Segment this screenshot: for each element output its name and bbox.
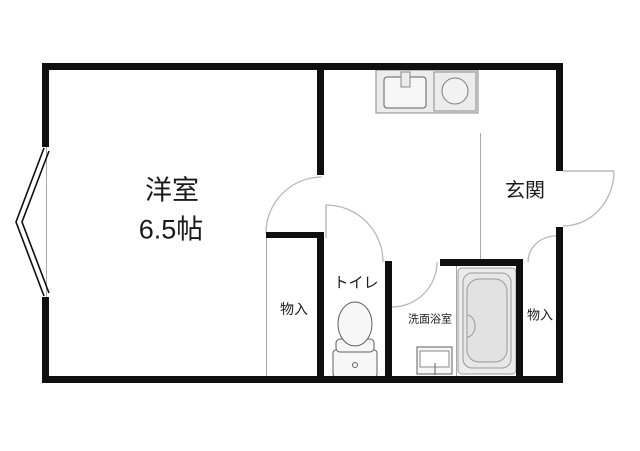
toilet-bowl: [338, 302, 372, 346]
wall-bottom: [42, 376, 563, 383]
label-main-room: 洋室: [145, 178, 199, 205]
toilet-tank: [333, 350, 377, 377]
wall-right-lower: [556, 227, 563, 383]
entrance-door-arc: [563, 171, 614, 226]
label-storage-entrance: 物入: [527, 309, 553, 322]
floor-plan-drawing: [0, 0, 640, 451]
entrance-storage-door-arc: [528, 236, 556, 262]
bathtub: [458, 268, 516, 374]
bathtub-inner: [467, 279, 507, 362]
toilet-fixture: [333, 302, 377, 377]
washroom-door-arc: [392, 262, 437, 307]
kitchen-counter: [376, 70, 478, 113]
floor-plan: 洋室 6.5帖 玄関 トイレ 物入 洗面浴室 物入: [0, 0, 640, 451]
wall-right-upper: [556, 63, 563, 171]
wall-closet-toilet: [317, 232, 324, 383]
wall-top: [42, 63, 563, 70]
wall-toilet-washroom: [385, 261, 392, 383]
wall-bath-right: [516, 259, 523, 383]
label-toilet: トイレ: [333, 276, 378, 291]
label-entrance: 玄関: [505, 181, 545, 201]
stove-burner-icon: [442, 78, 468, 104]
bay-window: [16, 148, 49, 296]
wall-closet-top: [266, 232, 322, 238]
vanity-sink: [417, 347, 452, 375]
wall-mainroom-kitchen: [317, 63, 324, 175]
partition-lines: [47, 133, 481, 376]
kitchen-faucet-icon: [401, 72, 410, 87]
window-outer-line: [16, 148, 44, 296]
main-room-door-arc: [266, 177, 322, 233]
toilet-door-arc: [326, 205, 383, 262]
wall-left-lower: [42, 297, 49, 383]
label-storage-main: 物入: [280, 302, 308, 316]
wall-left-upper: [42, 63, 49, 147]
label-main-room-size: 6.5帖: [139, 217, 204, 244]
wall-bath-top: [440, 259, 523, 266]
label-washroom-bath: 洗面浴室: [408, 315, 452, 326]
